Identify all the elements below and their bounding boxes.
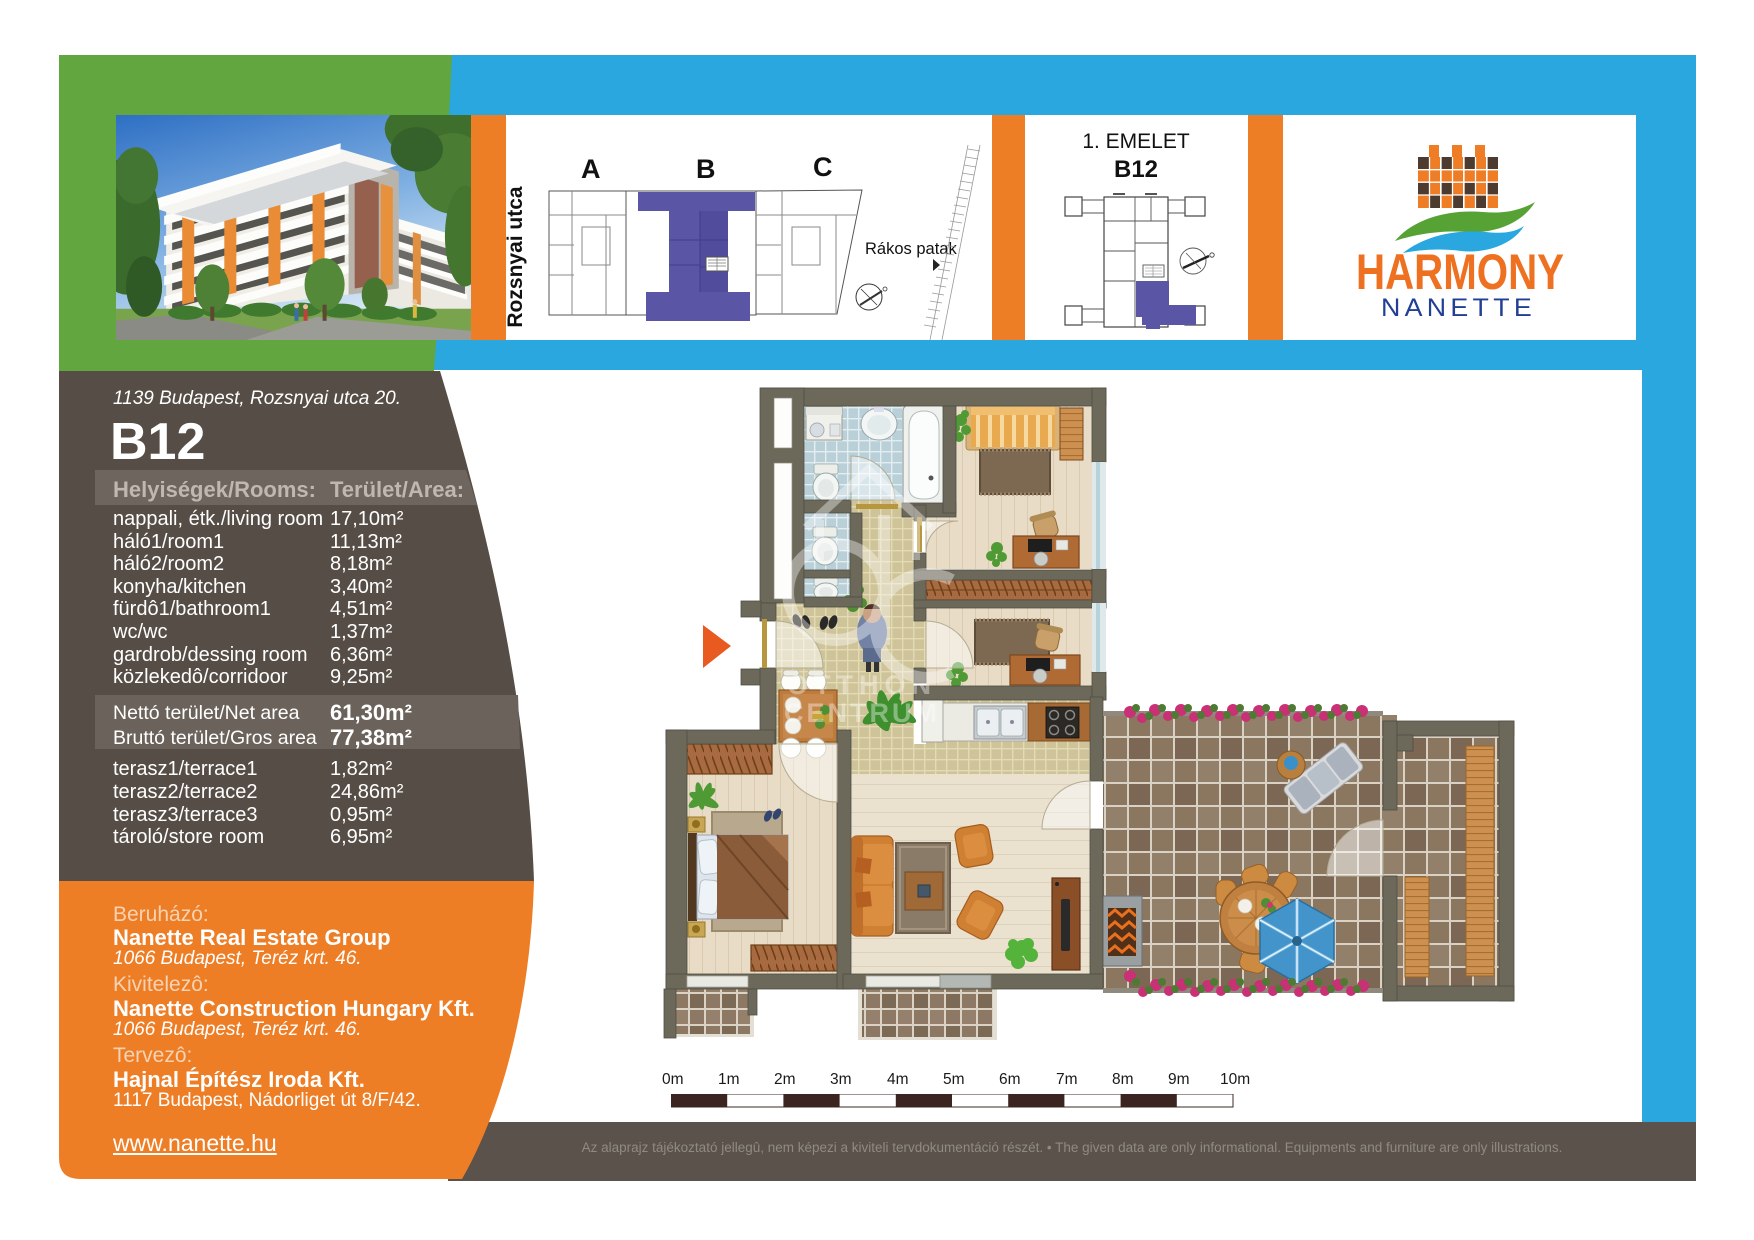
svg-text:CENTRUM: CENTRUM xyxy=(784,698,940,728)
svg-text:OTTHON: OTTHON xyxy=(787,670,937,700)
